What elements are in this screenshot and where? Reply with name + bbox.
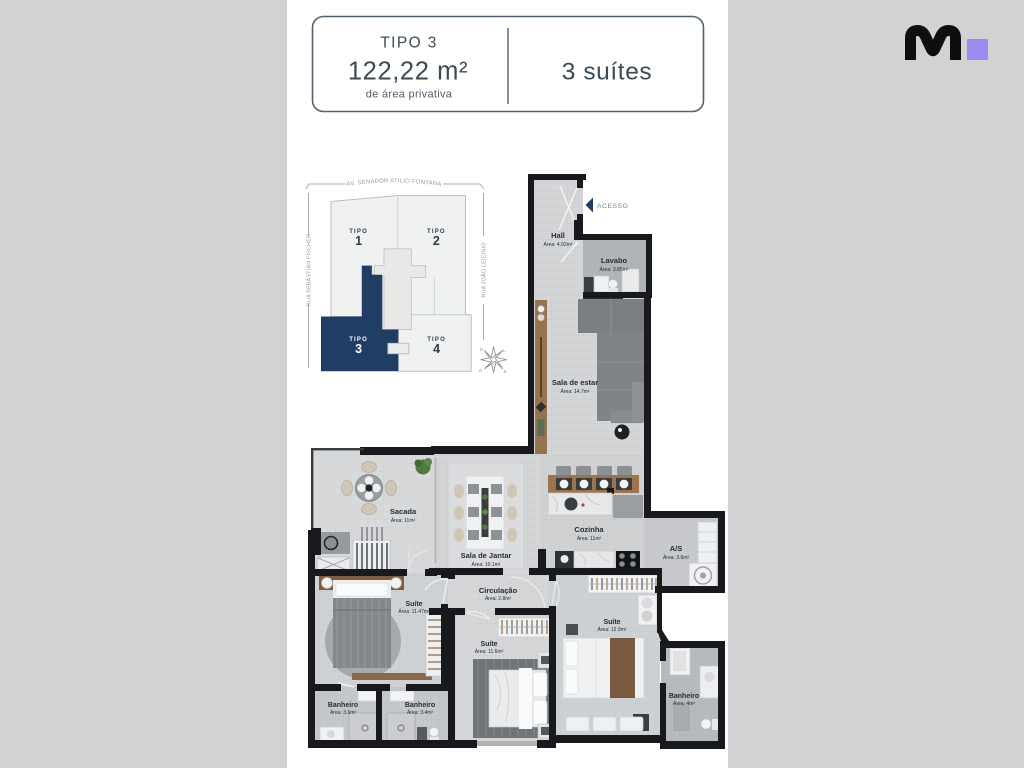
svg-text:RUA SEBASTIAN FISCHER: RUA SEBASTIAN FISCHER <box>307 234 313 306</box>
svg-text:Sala de estar: Sala de estar <box>552 378 598 387</box>
svg-text:4: 4 <box>433 342 440 356</box>
svg-text:A/S: A/S <box>670 544 683 553</box>
svg-text:Banheiro: Banheiro <box>405 702 435 709</box>
svg-text:Área: 3.85m²: Área: 3.85m² <box>600 266 629 273</box>
svg-text:3: 3 <box>355 342 362 356</box>
svg-text:O: O <box>479 368 483 373</box>
svg-text:Suíte: Suíte <box>405 601 422 608</box>
svg-text:Área: 3.4m²: Área: 3.4m² <box>407 709 433 716</box>
svg-text:Área: 3.6m²: Área: 3.6m² <box>663 554 689 561</box>
svg-text:Lavabo: Lavabo <box>601 256 628 265</box>
svg-text:Sacada: Sacada <box>390 507 417 516</box>
svg-text:Suíte: Suíte <box>480 641 497 648</box>
svg-text:de área privativa: de área privativa <box>366 89 453 101</box>
svg-text:Área: 11.47m²: Área: 11.47m² <box>398 608 430 615</box>
svg-text:Banheiro: Banheiro <box>328 702 358 709</box>
svg-text:122,22 m²: 122,22 m² <box>348 58 468 86</box>
svg-text:ACESSO: ACESSO <box>597 203 628 210</box>
svg-text:Área: 11m²: Área: 11m² <box>577 535 602 542</box>
svg-text:Suíte: Suíte <box>603 619 620 626</box>
svg-text:S: S <box>503 369 506 374</box>
svg-text:Circulação: Circulação <box>479 586 518 595</box>
svg-text:Área: 11.6m²: Área: 11.6m² <box>475 648 504 655</box>
svg-text:Área: 4.92m²: Área: 4.92m² <box>544 241 573 248</box>
svg-text:Cozinha: Cozinha <box>574 525 604 534</box>
svg-text:3 suítes: 3 suítes <box>562 59 653 86</box>
svg-text:Área: 2.8m²: Área: 2.8m² <box>485 595 511 602</box>
svg-text:Área: 14.7m²: Área: 14.7m² <box>561 388 590 395</box>
svg-text:N: N <box>480 347 483 352</box>
svg-text:1: 1 <box>355 234 362 248</box>
svg-text:Área: 12.9m²: Área: 12.9m² <box>598 626 627 633</box>
svg-text:2: 2 <box>433 234 440 248</box>
svg-text:Sala de Jantar: Sala de Jantar <box>461 551 512 560</box>
svg-text:Hall: Hall <box>551 231 565 240</box>
svg-text:Área: 11m²: Área: 11m² <box>391 517 416 524</box>
svg-text:Área: 4m²: Área: 4m² <box>673 700 695 707</box>
svg-text:Área: 10.1m²: Área: 10.1m² <box>472 561 501 568</box>
svg-text:RUA JOÃO LEICINIO: RUA JOÃO LEICINIO <box>481 242 488 297</box>
svg-text:Banheiro: Banheiro <box>669 693 699 700</box>
svg-text:TIPO 3: TIPO 3 <box>380 35 438 52</box>
svg-text:Área: 3.6m²: Área: 3.6m² <box>330 709 356 716</box>
